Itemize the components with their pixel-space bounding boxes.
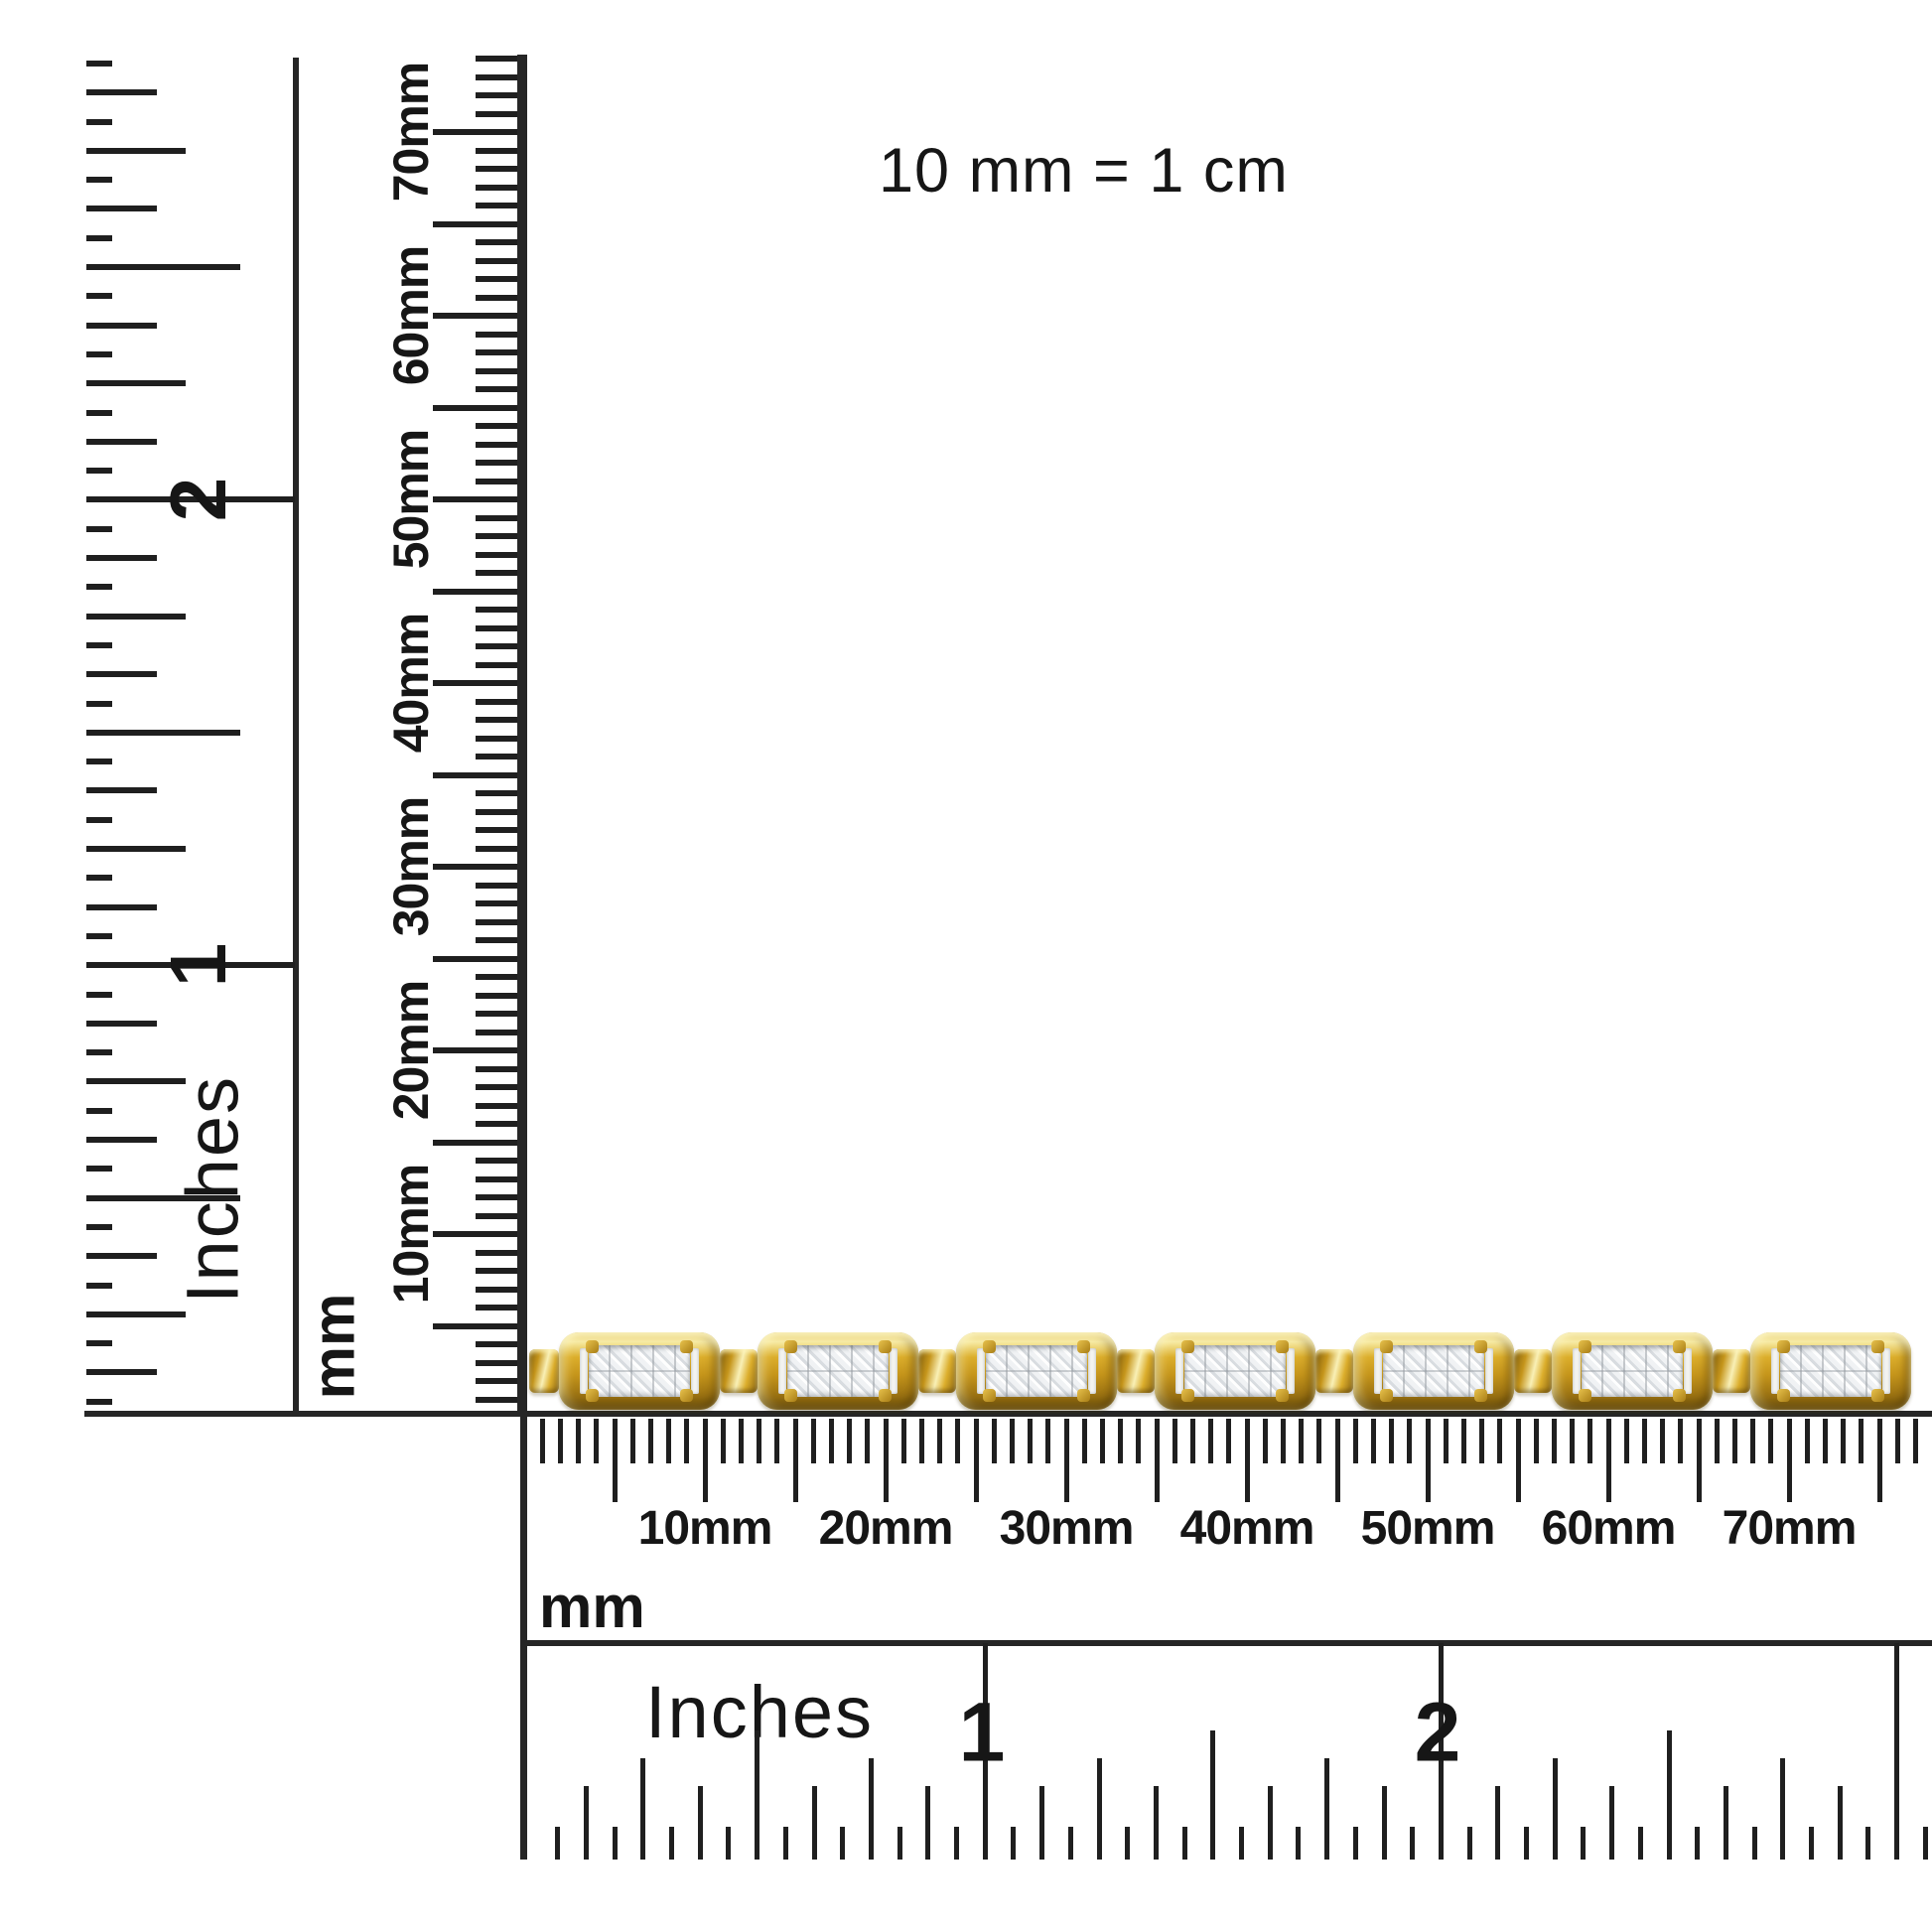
- horizontal-mm-ruler-tick: [901, 1419, 906, 1463]
- horizontal-mm-ruler-tick: [793, 1419, 798, 1502]
- vertical-mm-ruler-tick: [476, 1066, 517, 1072]
- horizontal-mm-ruler-label-40: 40mm: [1180, 1501, 1314, 1556]
- horizontal-mm-ruler-tick: [1606, 1419, 1611, 1502]
- left-inch-ruler-tick: [86, 584, 112, 590]
- bottom-inch-ruler-tick: [1609, 1786, 1614, 1860]
- left-inch-ruler-tick: [86, 759, 112, 764]
- bottom-inch-ruler-tick: [1239, 1827, 1244, 1860]
- bracelet-diamond-link: [1353, 1332, 1514, 1410]
- vertical-mm-ruler-tick: [433, 1323, 517, 1329]
- vertical-mm-ruler-tick: [476, 479, 517, 484]
- bracelet-link-prong: [1276, 1340, 1289, 1353]
- horizontal-mm-ruler-tick: [1570, 1419, 1575, 1463]
- bracelet-link-prong: [1474, 1389, 1487, 1402]
- vertical-mm-ruler-tick: [433, 1231, 517, 1237]
- left-inch-ruler-tick: [86, 1195, 240, 1201]
- vertical-mm-ruler-tick: [476, 74, 517, 80]
- bracelet-link-pave: [1582, 1345, 1683, 1397]
- bottom-inch-ruler-tick: [840, 1827, 845, 1860]
- bottom-inch-ruler-unit-label: Inches: [645, 1670, 874, 1754]
- horizontal-mm-ruler-tick: [1805, 1419, 1810, 1463]
- bottom-inch-ruler-tick: [1752, 1827, 1757, 1860]
- vertical-mm-ruler-tick: [476, 1287, 517, 1293]
- bottom-inch-ruler-tick: [755, 1730, 759, 1860]
- bottom-inch-ruler-tick: [726, 1827, 731, 1860]
- bottom-inch-ruler-tick: [1410, 1827, 1415, 1860]
- bottom-inch-ruler-tick: [1324, 1758, 1329, 1860]
- vertical-mm-ruler-tick: [433, 221, 517, 227]
- vertical-mm-ruler-label-40-text: 40mm: [382, 614, 440, 754]
- vertical-mm-ruler-tick: [476, 349, 517, 355]
- bottom-inch-ruler-top-line: [524, 1640, 1932, 1646]
- bottom-inch-ruler-tick: [1154, 1786, 1159, 1860]
- vertical-mm-ruler-tick: [476, 1084, 517, 1090]
- bottom-inch-ruler-tick: [555, 1827, 560, 1860]
- horizontal-mm-ruler-tick: [703, 1419, 708, 1502]
- vertical-mm-ruler-label-10-text: 10mm: [382, 1165, 440, 1305]
- horizontal-mm-ruler-tick: [1678, 1419, 1683, 1463]
- horizontal-mm-ruler-tick: [1768, 1419, 1773, 1463]
- vertical-mm-ruler-tick: [476, 662, 517, 668]
- bracelet-link-prong: [879, 1389, 892, 1402]
- horizontal-mm-ruler-tick: [594, 1419, 599, 1463]
- left-inch-ruler-tick: [86, 1253, 157, 1259]
- vertical-mm-ruler-tick: [476, 92, 517, 98]
- horizontal-mm-ruler-tick: [811, 1419, 816, 1463]
- vertical-mm-ruler-tick: [433, 864, 517, 870]
- left-inch-ruler-tick: [86, 1311, 186, 1317]
- left-inch-ruler-tick: [86, 787, 157, 793]
- bracelet-link-prong: [983, 1389, 996, 1402]
- bracelet-diamond-link: [559, 1332, 720, 1410]
- left-inch-ruler-number-1-text: 1: [153, 943, 244, 988]
- horizontal-mm-ruler-tick: [1732, 1419, 1737, 1463]
- left-inch-ruler-tick: [86, 177, 112, 183]
- left-inch-ruler-tick: [86, 1224, 112, 1230]
- horizontal-mm-ruler-tick: [613, 1419, 618, 1502]
- bottom-inch-ruler-tick: [1667, 1730, 1672, 1860]
- left-inch-ruler-tick: [86, 526, 112, 532]
- vertical-mm-ruler-tick: [433, 589, 517, 595]
- bracelet-link-prong: [983, 1340, 996, 1353]
- vertical-mm-ruler-tick: [476, 386, 517, 392]
- vertical-mm-ruler-tick: [476, 515, 517, 521]
- horizontal-mm-ruler-tick: [1335, 1419, 1340, 1502]
- bracelet-link-pave: [787, 1345, 889, 1397]
- horizontal-mm-ruler-tick: [1371, 1419, 1376, 1463]
- horizontal-mm-ruler-tick: [1823, 1419, 1828, 1463]
- horizontal-mm-ruler-tick: [684, 1419, 689, 1463]
- horizontal-mm-ruler-tick: [1299, 1419, 1304, 1463]
- scale-photo-canvas: 10 mm = 1 cm Inches mm mm Inches 2110mm2…: [0, 0, 1932, 1932]
- horizontal-mm-ruler-tick: [1010, 1419, 1015, 1463]
- horizontal-mm-ruler-tick: [739, 1419, 744, 1463]
- horizontal-mm-ruler-tick: [1461, 1419, 1466, 1463]
- horizontal-mm-ruler-tick: [1389, 1419, 1394, 1463]
- bracelet-link-pave: [589, 1345, 690, 1397]
- vertical-mm-ruler-tick: [433, 772, 517, 778]
- horizontal-mm-ruler-tick: [1913, 1419, 1918, 1463]
- left-inch-ruler-tick: [86, 1108, 112, 1114]
- left-inch-ruler-tick: [86, 410, 112, 416]
- bracelet-link-prong: [1777, 1389, 1790, 1402]
- left-inch-ruler-tick: [86, 1021, 157, 1027]
- horizontal-mm-ruler-tick: [1263, 1419, 1268, 1463]
- horizontal-mm-ruler-tick: [1534, 1419, 1539, 1463]
- bottom-inch-ruler-tick: [1923, 1827, 1928, 1860]
- horizontal-mm-ruler-tick: [1082, 1419, 1087, 1463]
- horizontal-mm-ruler-tick: [884, 1419, 889, 1502]
- bracelet-link-sliver-left: [977, 1348, 985, 1394]
- vertical-mm-ruler-tick: [476, 332, 517, 338]
- left-inch-ruler-tick: [86, 904, 157, 910]
- bracelet-link-sliver-right: [691, 1348, 699, 1394]
- bracelet-link-prong: [879, 1340, 892, 1353]
- horizontal-mm-ruler-unit-label: mm: [539, 1573, 645, 1641]
- bracelet-link-sliver-left: [580, 1348, 588, 1394]
- bottom-inch-ruler-tick: [1638, 1827, 1643, 1860]
- horizontal-mm-ruler-label-20: 20mm: [819, 1501, 953, 1556]
- bracelet-link-sliver-left: [778, 1348, 786, 1394]
- vertical-mm-ruler-tick: [476, 754, 517, 759]
- bracelet-diamond-link: [1552, 1332, 1713, 1410]
- horizontal-mm-ruler-tick: [1118, 1419, 1123, 1463]
- bottom-inch-ruler-tick: [1581, 1827, 1586, 1860]
- vertical-mm-ruler-tick: [476, 937, 517, 943]
- horizontal-mm-ruler-tick: [1587, 1419, 1592, 1463]
- vertical-mm-ruler-tick: [476, 643, 517, 649]
- horizontal-mm-ruler-label-10: 10mm: [638, 1501, 772, 1556]
- left-inch-ruler-tick: [86, 846, 186, 852]
- horizontal-mm-ruler-tick: [829, 1419, 834, 1463]
- vertical-mm-ruler-tick: [476, 570, 517, 576]
- left-inch-ruler-tick: [86, 351, 112, 357]
- vertical-mm-ruler-tick: [476, 993, 517, 999]
- horizontal-mm-ruler-tick: [1715, 1419, 1720, 1463]
- left-inch-ruler-tick: [86, 730, 240, 736]
- vertical-mm-ruler-tick: [476, 185, 517, 191]
- bracelet-connector-bar: [918, 1349, 956, 1393]
- bracelet-link-prong: [1276, 1389, 1289, 1402]
- vertical-mm-ruler-tick: [476, 625, 517, 631]
- horizontal-mm-ruler-tick: [1100, 1419, 1105, 1463]
- left-inch-ruler-tick: [86, 61, 112, 67]
- vertical-mm-ruler-tick: [476, 1378, 517, 1384]
- horizontal-mm-ruler-tick: [847, 1419, 852, 1463]
- vertical-mm-ruler-tick: [476, 1360, 517, 1366]
- left-inch-ruler-tick: [86, 875, 112, 881]
- bottom-inch-ruler-tick: [1039, 1786, 1044, 1860]
- bracelet-diamond-link: [758, 1332, 918, 1410]
- bracelet-link-prong: [1181, 1340, 1194, 1353]
- bottom-inch-ruler-tick: [1524, 1827, 1529, 1860]
- left-inch-ruler-tick: [86, 439, 157, 445]
- bracelet-connector-bar: [1117, 1349, 1155, 1393]
- left-inch-ruler-tick: [86, 1049, 112, 1055]
- bottom-inch-ruler-tick: [1268, 1786, 1273, 1860]
- bracelet-link-prong: [586, 1389, 599, 1402]
- bottom-inch-ruler-tick: [669, 1827, 674, 1860]
- horizontal-mm-ruler-tick: [1841, 1419, 1846, 1463]
- horizontal-mm-ruler-tick: [919, 1419, 924, 1463]
- bottom-inch-ruler-tick: [1724, 1786, 1728, 1860]
- bottom-inch-ruler-tick: [925, 1786, 930, 1860]
- bottom-inch-ruler-tick: [1809, 1827, 1814, 1860]
- left-inch-ruler-tick: [86, 119, 112, 125]
- horizontal-mm-ruler-tick: [666, 1419, 671, 1463]
- vertical-mm-ruler-label-30-text: 30mm: [382, 797, 440, 937]
- vertical-mm-ruler-tick: [476, 1030, 517, 1035]
- vertical-mm-ruler-tick: [476, 111, 517, 117]
- bracelet-link-prong: [784, 1389, 797, 1402]
- vertical-mm-ruler-tick: [476, 166, 517, 172]
- measure-baseline-rule: [84, 1411, 1932, 1417]
- horizontal-mm-ruler-tick: [1173, 1419, 1177, 1463]
- horizontal-mm-ruler-label-30: 30mm: [1000, 1501, 1134, 1556]
- bottom-inch-ruler-tick: [640, 1758, 645, 1860]
- vertical-mm-ruler-tick: [476, 295, 517, 301]
- horizontal-mm-ruler-tick: [1208, 1419, 1213, 1463]
- bracelet-link-prong: [1077, 1389, 1090, 1402]
- left-inch-ruler-edge-line: [293, 58, 299, 1415]
- bracelet-link-sliver-left: [1573, 1348, 1581, 1394]
- left-inch-ruler-tick: [86, 206, 157, 211]
- vertical-mm-ruler-tick: [476, 1121, 517, 1127]
- bracelet-link-prong: [1579, 1340, 1591, 1353]
- vertical-mm-ruler-tick: [476, 736, 517, 742]
- vertical-mm-ruler-tick: [476, 1176, 517, 1182]
- left-inch-ruler-tick: [86, 1399, 112, 1405]
- bracelet-photo: [529, 1332, 1932, 1410]
- left-inch-ruler-tick: [86, 264, 240, 270]
- bracelet-link-sliver-right: [1684, 1348, 1692, 1394]
- horizontal-mm-ruler-tick: [630, 1419, 635, 1463]
- left-inch-ruler-tick: [86, 1137, 157, 1143]
- horizontal-mm-ruler-tick: [1516, 1419, 1521, 1502]
- bottom-inch-ruler-tick: [1467, 1827, 1472, 1860]
- bottom-inch-ruler-tick: [1838, 1786, 1843, 1860]
- vertical-mm-ruler-label-70-text: 70mm: [382, 63, 440, 203]
- bracelet-connector-bar: [1315, 1349, 1353, 1393]
- left-inch-ruler-tick: [86, 468, 112, 474]
- bracelet-connector-bar: [720, 1349, 758, 1393]
- left-inch-ruler-tick: [86, 89, 157, 95]
- vertical-mm-ruler-tick: [476, 239, 517, 245]
- vertical-mm-ruler-tick: [433, 680, 517, 686]
- bracelet-diamond-link: [956, 1332, 1117, 1410]
- left-inch-ruler-tick: [86, 642, 112, 648]
- vertical-mm-ruler-tick: [476, 900, 517, 906]
- horizontal-mm-ruler-tick: [1226, 1419, 1231, 1463]
- horizontal-mm-ruler-tick: [774, 1419, 779, 1463]
- vertical-mm-ruler-tick: [476, 846, 517, 852]
- bracelet-link-sliver-left: [1175, 1348, 1183, 1394]
- bracelet-link-prong: [1871, 1340, 1884, 1353]
- bracelet-link-prong: [586, 1340, 599, 1353]
- vertical-mm-ruler-label-60-text: 60mm: [382, 246, 440, 386]
- left-inch-ruler-tick: [86, 701, 112, 707]
- bracelet-link-pave: [1780, 1345, 1881, 1397]
- vertical-mm-ruler-tick: [476, 533, 517, 539]
- bottom-inch-ruler-tick: [1068, 1827, 1073, 1860]
- bracelet-link-sliver-left: [1374, 1348, 1382, 1394]
- bottom-inch-ruler-tick: [1382, 1786, 1387, 1860]
- vertical-mm-ruler-tick: [476, 368, 517, 374]
- horizontal-mm-ruler-tick: [1316, 1419, 1321, 1463]
- vertical-mm-ruler-tick: [433, 1047, 517, 1053]
- bracelet-link-prong: [1077, 1340, 1090, 1353]
- bottom-inch-ruler-tick: [1553, 1758, 1558, 1860]
- vertical-mm-ruler-tick: [476, 1268, 517, 1274]
- vertical-mm-ruler-tick: [433, 496, 517, 502]
- horizontal-mm-ruler-tick: [540, 1419, 545, 1463]
- left-inch-ruler-tick: [86, 671, 157, 677]
- bottom-inch-ruler-number-1: 1: [959, 1685, 1006, 1781]
- bottom-inch-ruler-tick: [584, 1786, 589, 1860]
- horizontal-mm-ruler-tick: [955, 1419, 960, 1463]
- bracelet-link-sliver-right: [1287, 1348, 1295, 1394]
- vertical-mm-ruler-tick: [476, 276, 517, 282]
- horizontal-mm-ruler-tick: [937, 1419, 942, 1463]
- vertical-mm-ruler-tick: [476, 442, 517, 448]
- bracelet-link-prong: [1673, 1340, 1686, 1353]
- left-inch-ruler-tick: [86, 933, 112, 939]
- left-inch-ruler-tick: [86, 555, 157, 561]
- vertical-mm-ruler-tick: [476, 827, 517, 833]
- bracelet-link-sliver-right: [1088, 1348, 1096, 1394]
- left-inch-ruler-tick: [86, 817, 112, 823]
- horizontal-mm-ruler-tick: [1353, 1419, 1358, 1463]
- left-inch-ruler-tick: [86, 235, 112, 241]
- horizontal-mm-ruler-tick: [1877, 1419, 1882, 1502]
- left-inch-ruler-tick: [86, 1283, 112, 1289]
- bracelet-link-pave: [1383, 1345, 1484, 1397]
- bracelet-link-prong: [1673, 1389, 1686, 1402]
- left-inch-ruler-tick: [86, 1340, 112, 1346]
- horizontal-mm-ruler-tick: [1064, 1419, 1069, 1502]
- horizontal-mm-ruler-tick: [1750, 1419, 1755, 1463]
- bracelet-link-prong: [1380, 1389, 1393, 1402]
- vertical-mm-ruler-tick: [476, 974, 517, 980]
- horizontal-mm-ruler-tick: [992, 1419, 997, 1463]
- horizontal-mm-ruler-label-70: 70mm: [1723, 1501, 1857, 1556]
- bottom-inch-ruler-tick: [1695, 1827, 1700, 1860]
- horizontal-mm-ruler-tick: [1552, 1419, 1557, 1463]
- ruler-origin-edge-line: [520, 55, 527, 1860]
- bracelet-link-prong: [1871, 1389, 1884, 1402]
- horizontal-mm-ruler-tick: [1028, 1419, 1033, 1463]
- vertical-mm-ruler-tick: [433, 1140, 517, 1146]
- horizontal-mm-ruler-tick: [1281, 1419, 1286, 1463]
- vertical-mm-ruler-label-50-text: 50mm: [382, 430, 440, 570]
- bracelet-link-prong: [680, 1389, 693, 1402]
- bottom-inch-ruler-tick: [1097, 1758, 1102, 1860]
- vertical-mm-ruler-tick: [476, 1011, 517, 1017]
- horizontal-mm-ruler-tick: [1245, 1419, 1250, 1502]
- left-inch-ruler-tick: [86, 614, 186, 620]
- vertical-mm-ruler-tick: [476, 607, 517, 613]
- bracelet-link-prong: [680, 1340, 693, 1353]
- bottom-inch-ruler-tick: [869, 1758, 874, 1860]
- bottom-inch-ruler-tick: [1353, 1827, 1358, 1860]
- bottom-inch-ruler-tick: [1210, 1730, 1215, 1860]
- bottom-inch-ruler-tick: [1495, 1786, 1500, 1860]
- left-inch-ruler-tick: [86, 148, 186, 154]
- bracelet-link-prong: [1380, 1340, 1393, 1353]
- bracelet-link-prong: [1579, 1389, 1591, 1402]
- bracelet-connector-bar: [1713, 1349, 1750, 1393]
- left-inch-ruler-tick: [86, 323, 157, 329]
- horizontal-mm-ruler-tick: [1426, 1419, 1431, 1502]
- horizontal-mm-ruler-tick: [1697, 1419, 1702, 1502]
- bottom-inch-ruler-tick: [1865, 1827, 1870, 1860]
- vertical-mm-ruler-tick: [476, 1250, 517, 1256]
- vertical-mm-ruler-tick: [476, 258, 517, 264]
- vertical-mm-ruler-tick: [476, 460, 517, 466]
- horizontal-mm-ruler-tick: [648, 1419, 653, 1463]
- bracelet-link-prong: [1474, 1340, 1487, 1353]
- horizontal-mm-ruler-tick: [1136, 1419, 1141, 1463]
- vertical-mm-ruler-tick: [433, 405, 517, 411]
- bracelet-link-prong: [1777, 1340, 1790, 1353]
- vertical-mm-ruler-tick: [476, 56, 517, 62]
- vertical-mm-ruler-tick: [476, 1341, 517, 1347]
- vertical-mm-ruler-tick: [476, 699, 517, 705]
- horizontal-mm-ruler-tick: [1787, 1419, 1792, 1502]
- left-inch-ruler-tick: [86, 992, 112, 998]
- horizontal-mm-ruler-tick: [1190, 1419, 1195, 1463]
- vertical-mm-ruler-tick: [476, 203, 517, 208]
- left-inch-ruler-tick: [86, 380, 186, 386]
- bottom-inch-ruler-tick: [812, 1786, 817, 1860]
- horizontal-mm-ruler-label-50: 50mm: [1361, 1501, 1495, 1556]
- left-inch-ruler-tick: [86, 1078, 186, 1084]
- bracelet-link-prong: [1181, 1389, 1194, 1402]
- left-inch-ruler-number-2-text: 2: [153, 478, 244, 522]
- horizontal-mm-ruler-tick: [1642, 1419, 1647, 1463]
- vertical-mm-ruler-tick: [476, 1194, 517, 1200]
- horizontal-mm-ruler-tick: [974, 1419, 979, 1502]
- bottom-inch-ruler-tick: [1296, 1827, 1301, 1860]
- horizontal-mm-ruler-tick: [1624, 1419, 1629, 1463]
- horizontal-mm-ruler-tick: [721, 1419, 726, 1463]
- horizontal-mm-ruler-tick: [1479, 1419, 1484, 1463]
- vertical-mm-ruler-tick: [476, 1397, 517, 1403]
- bottom-inch-ruler-tick: [1780, 1758, 1785, 1860]
- bottom-inch-ruler-tick: [1011, 1827, 1016, 1860]
- vertical-mm-ruler-tick: [476, 1213, 517, 1219]
- vertical-mm-ruler-tick: [476, 1158, 517, 1164]
- bracelet-diamond-link: [1750, 1332, 1911, 1410]
- bottom-inch-ruler-tick: [783, 1827, 788, 1860]
- bottom-inch-ruler-tick: [1894, 1643, 1899, 1860]
- horizontal-mm-ruler-tick: [757, 1419, 761, 1463]
- bottom-inch-ruler-tick: [698, 1786, 703, 1860]
- vertical-mm-ruler-tick: [476, 148, 517, 154]
- bottom-inch-ruler-tick: [897, 1827, 902, 1860]
- vertical-mm-ruler-tick: [433, 129, 517, 135]
- vertical-mm-ruler-tick: [476, 1103, 517, 1109]
- vertical-mm-ruler-tick: [476, 423, 517, 429]
- scale-note: 10 mm = 1 cm: [879, 135, 1289, 207]
- vertical-mm-ruler-tick: [476, 552, 517, 558]
- bracelet-link-sliver-right: [1485, 1348, 1493, 1394]
- bracelet-connector-bar: [1514, 1349, 1552, 1393]
- vertical-mm-ruler-tick: [433, 313, 517, 319]
- horizontal-mm-ruler-tick: [1155, 1419, 1160, 1502]
- vertical-mm-ruler-tick: [476, 883, 517, 889]
- horizontal-mm-ruler-tick: [1895, 1419, 1900, 1463]
